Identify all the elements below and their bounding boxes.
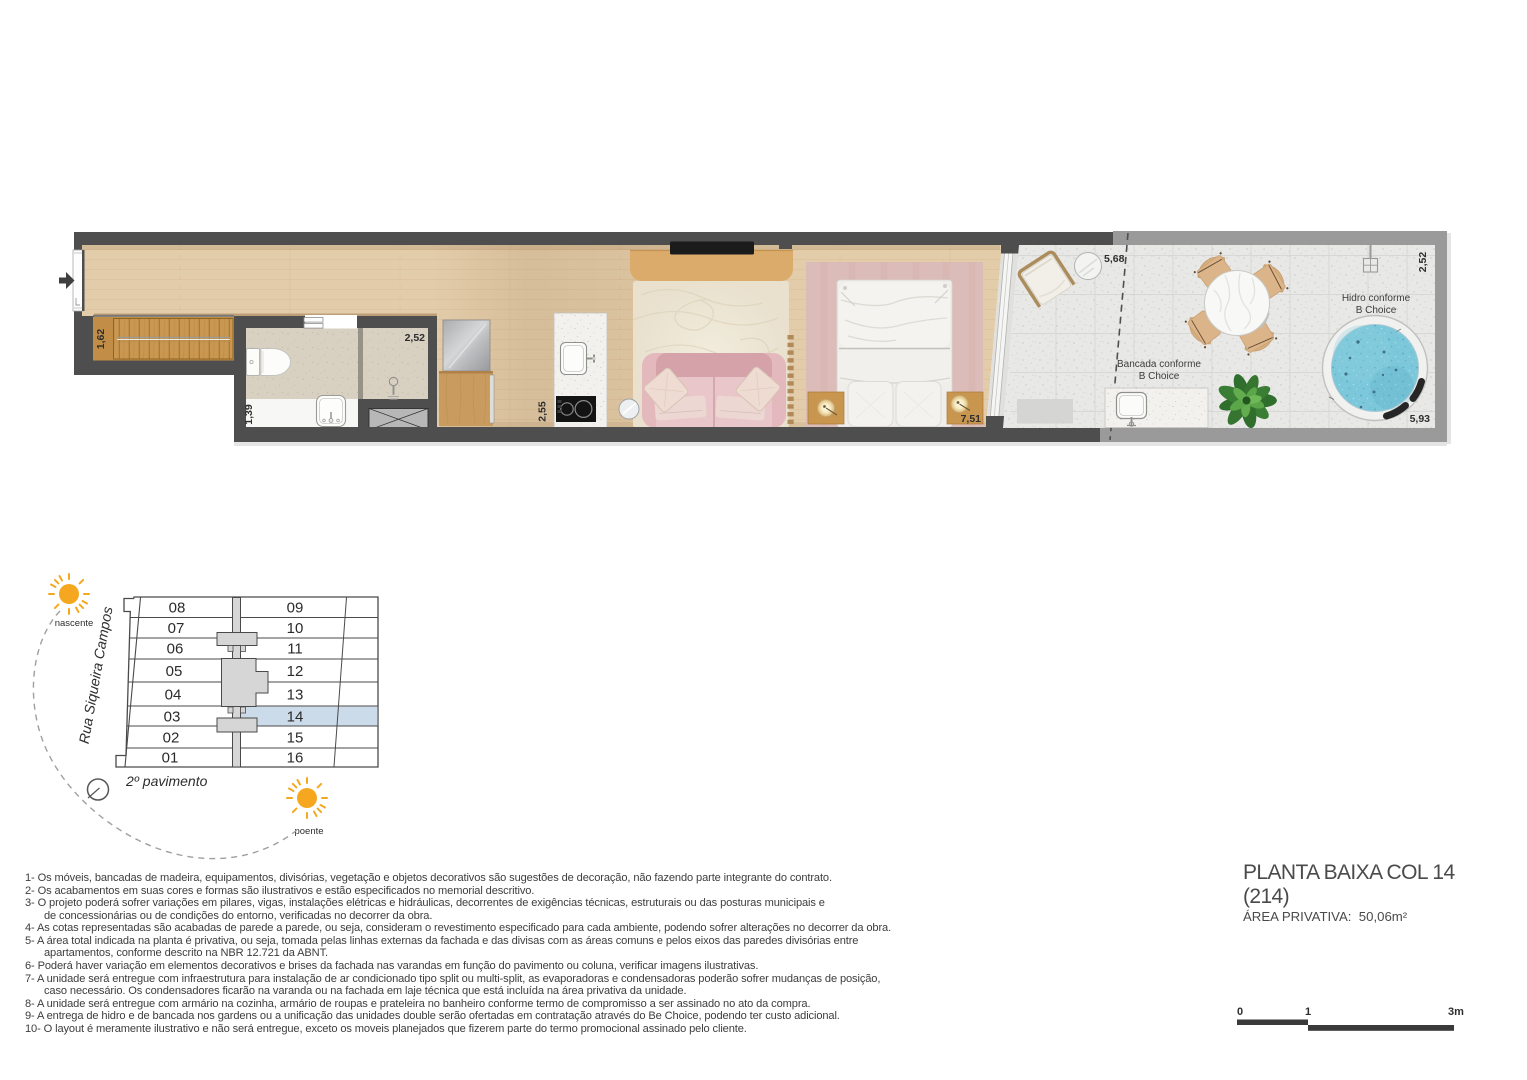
svg-text:04: 04 [165, 687, 182, 704]
svg-text:11: 11 [287, 641, 303, 658]
svg-text:5,93: 5,93 [1410, 413, 1431, 425]
svg-text:12: 12 [287, 663, 304, 680]
svg-text:09: 09 [287, 600, 304, 617]
svg-text:13: 13 [287, 687, 304, 704]
svg-text:2,55: 2,55 [537, 401, 549, 422]
svg-text:16: 16 [287, 750, 304, 767]
svg-text:Hidro conforme: Hidro conforme [1342, 293, 1411, 304]
svg-text:B Choice: B Choice [1356, 305, 1397, 316]
svg-text:2º pavimento: 2º pavimento [125, 773, 208, 789]
svg-text:poente: poente [294, 826, 323, 837]
svg-text:06: 06 [167, 641, 184, 658]
svg-text:15: 15 [287, 730, 304, 747]
svg-text:02: 02 [163, 730, 180, 747]
svg-text:2,52: 2,52 [405, 332, 426, 344]
svg-text:2,52: 2,52 [1417, 252, 1429, 273]
svg-text:Bancada conforme: Bancada conforme [1117, 359, 1201, 370]
svg-text:03: 03 [164, 709, 181, 726]
svg-text:10: 10 [287, 620, 304, 637]
svg-text:05: 05 [166, 663, 183, 680]
svg-text:14: 14 [287, 709, 304, 726]
svg-text:B Choice: B Choice [1139, 371, 1180, 382]
svg-text:5,68: 5,68 [1104, 253, 1125, 265]
svg-text:1,39: 1,39 [243, 404, 255, 425]
svg-text:07: 07 [168, 620, 185, 637]
svg-text:1,62: 1,62 [95, 329, 107, 350]
svg-text:nascente: nascente [55, 618, 94, 629]
svg-text:7,51: 7,51 [961, 413, 982, 425]
svg-text:08: 08 [169, 600, 186, 617]
svg-text:01: 01 [162, 750, 179, 767]
